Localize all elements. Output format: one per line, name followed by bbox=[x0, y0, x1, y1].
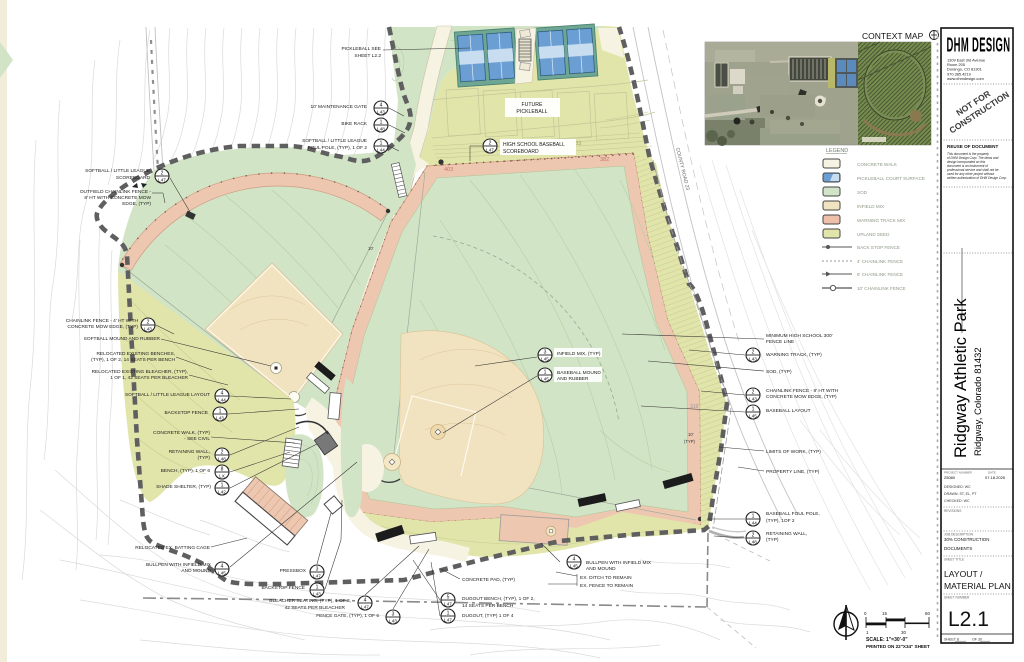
svg-text:CHAINLINK FENCE - 4' HT WITH: CHAINLINK FENCE - 4' HT WITH bbox=[66, 318, 139, 324]
svg-text:CONCRETE WALK, (TYP): CONCRETE WALK, (TYP) bbox=[153, 430, 210, 436]
svg-text:1: 1 bbox=[380, 120, 383, 126]
svg-text:BASEBALL LAYOUT: BASEBALL LAYOUT bbox=[766, 408, 811, 414]
svg-text:1: 1 bbox=[752, 514, 755, 520]
svg-text:UPLAND SEED: UPLAND SEED bbox=[857, 232, 890, 237]
svg-text:L44: L44 bbox=[218, 397, 226, 402]
svg-text:1: 1 bbox=[544, 370, 547, 376]
svg-text:SOD, (TYP): SOD, (TYP) bbox=[766, 369, 792, 375]
svg-text:EX. FENCE TO REMAIN: EX. FENCE TO REMAIN bbox=[580, 583, 634, 589]
svg-text:07.18.2025: 07.18.2025 bbox=[985, 475, 1006, 480]
svg-text:3: 3 bbox=[544, 350, 547, 356]
svg-text:L42: L42 bbox=[218, 489, 226, 494]
svg-text:BASEBALL FOUL POLE,: BASEBALL FOUL POLE, bbox=[766, 511, 820, 517]
svg-text:L47: L47 bbox=[444, 617, 452, 622]
svg-text:JOB DESCRIPTION: JOB DESCRIPTION bbox=[944, 533, 974, 537]
svg-text:1: 1 bbox=[316, 585, 319, 591]
svg-text:DOCUMENTS: DOCUMENTS bbox=[944, 546, 972, 551]
svg-text:1 OF 1, 42 SEATS PER BLEACHER: 1 OF 1, 42 SEATS PER BLEACHER bbox=[110, 375, 188, 381]
svg-text:25080: 25080 bbox=[944, 475, 956, 480]
svg-text:OF 30: OF 30 bbox=[972, 638, 982, 642]
svg-text:PICKLEBALL COURT SURFACE: PICKLEBALL COURT SURFACE bbox=[857, 176, 925, 181]
svg-text:8: 8 bbox=[221, 467, 224, 473]
svg-text:(TYP): (TYP) bbox=[197, 455, 210, 461]
svg-text:L47: L47 bbox=[444, 601, 452, 606]
svg-text:PICKLEBALL SEE: PICKLEBALL SEE bbox=[341, 46, 381, 52]
svg-text:L45: L45 bbox=[749, 413, 757, 418]
svg-text:10' MAINTENANCE GATE: 10' MAINTENANCE GATE bbox=[310, 104, 367, 110]
svg-text:PROPERTY LINE, (TYP): PROPERTY LINE, (TYP) bbox=[766, 469, 820, 475]
svg-text:2: 2 bbox=[489, 141, 492, 147]
svg-text:1: 1 bbox=[380, 141, 383, 147]
svg-text:EDGE, (TYP): EDGE, (TYP) bbox=[122, 201, 151, 207]
svg-text:L45: L45 bbox=[218, 570, 226, 575]
svg-text:FENCE LINE: FENCE LINE bbox=[766, 339, 794, 345]
svg-text:4: 4 bbox=[573, 557, 576, 563]
svg-text:2: 2 bbox=[161, 171, 164, 177]
svg-text:EX. DITCH TO REMAIN: EX. DITCH TO REMAIN bbox=[580, 575, 632, 581]
svg-text:L44: L44 bbox=[749, 520, 757, 525]
svg-text:BULLPEN WITH INFIELD MIX: BULLPEN WITH INFIELD MIX bbox=[586, 560, 652, 566]
svg-text:SOFTBALL / LITTLE LEAGUE: SOFTBALL / LITTLE LEAGUE bbox=[302, 138, 367, 144]
svg-text:4: 4 bbox=[380, 103, 383, 109]
svg-text:WARNING TRACK, (TYP): WARNING TRACK, (TYP) bbox=[766, 352, 822, 358]
svg-text:PRINTED ON 22"X34" SHEET: PRINTED ON 22"X34" SHEET bbox=[866, 644, 930, 649]
svg-text:Ridgway Athletic Park: Ridgway Athletic Park bbox=[952, 298, 970, 458]
svg-text:L45: L45 bbox=[541, 376, 549, 381]
svg-text:4: 4 bbox=[221, 564, 224, 570]
svg-text:L43: L43 bbox=[749, 356, 757, 361]
svg-text:42 SEATS PER BLEACHER: 42 SEATS PER BLEACHER bbox=[285, 605, 346, 611]
svg-text:BLEACHER SEATING, (TYP), 1 OF: BLEACHER SEATING, (TYP), 1 OF 3, bbox=[269, 598, 351, 604]
svg-text:CONCRETE MOW EDGE, (TYP): CONCRETE MOW EDGE, (TYP) bbox=[766, 394, 837, 400]
svg-text:SOFTBALL / LITTLE LEAGUE: SOFTBALL / LITTLE LEAGUE bbox=[85, 168, 150, 174]
svg-text:DRAWN: ST, EL, PT: DRAWN: ST, EL, PT bbox=[944, 492, 977, 496]
svg-text:60: 60 bbox=[925, 611, 931, 616]
svg-text:DATE: DATE bbox=[988, 471, 996, 475]
svg-text:OUTFIELD CHAINLINK FENCE -: OUTFIELD CHAINLINK FENCE - bbox=[80, 189, 152, 195]
svg-text:L48: L48 bbox=[749, 539, 757, 544]
svg-text:CHAINLINK FENCE - 8' HT WITH: CHAINLINK FENCE - 8' HT WITH bbox=[766, 388, 839, 394]
svg-text:SOD: SOD bbox=[857, 190, 868, 195]
svg-text:1: 1 bbox=[221, 483, 224, 489]
svg-text:RETAINING WALL,: RETAINING WALL, bbox=[766, 531, 807, 537]
svg-text:CONCRETE MOW EDGE, (TYP): CONCRETE MOW EDGE, (TYP) bbox=[67, 324, 138, 330]
svg-text:BENCH, (TYP), 1 OF 6: BENCH, (TYP), 1 OF 6 bbox=[161, 468, 211, 474]
svg-text:L47: L47 bbox=[361, 604, 369, 609]
svg-text:8' CHAINLINK FENCE: 8' CHAINLINK FENCE bbox=[857, 272, 903, 277]
svg-text:LAYOUT /: LAYOUT / bbox=[944, 569, 983, 579]
svg-text:FENCE GATE, (TYP), 1 OF 6: FENCE GATE, (TYP), 1 OF 6 bbox=[316, 613, 379, 619]
svg-text:L43: L43 bbox=[389, 618, 397, 623]
svg-text:30% CONSTRUCTION: 30% CONSTRUCTION bbox=[944, 537, 989, 542]
svg-text:4' CHAINLINK FENCE: 4' CHAINLINK FENCE bbox=[857, 259, 903, 264]
svg-text:LEGEND: LEGEND bbox=[826, 148, 848, 154]
svg-text:Ridgway, Colorado 81432: Ridgway, Colorado 81432 bbox=[973, 347, 984, 456]
svg-text:SHEET 8: SHEET 8 bbox=[944, 638, 959, 642]
svg-text:PICKLEBALL: PICKLEBALL bbox=[516, 109, 547, 115]
svg-text:SHADE SHELTER, (TYP): SHADE SHELTER, (TYP) bbox=[156, 484, 211, 490]
svg-text:5: 5 bbox=[447, 595, 450, 601]
svg-text:PRESSBOX: PRESSBOX bbox=[280, 568, 307, 574]
svg-text:L48: L48 bbox=[218, 456, 226, 461]
svg-text:SHEET TITLE: SHEET TITLE bbox=[944, 558, 964, 562]
svg-text:LX: LX bbox=[219, 473, 225, 478]
svg-text:30: 30 bbox=[901, 630, 907, 635]
svg-text:PROJECT NUMBER: PROJECT NUMBER bbox=[944, 471, 973, 475]
svg-text:BASEBALL MOUND: BASEBALL MOUND bbox=[557, 370, 601, 376]
svg-text:L43: L43 bbox=[216, 415, 224, 420]
svg-text:L47: L47 bbox=[313, 573, 321, 578]
svg-text:BACKSTOP FENCE: BACKSTOP FENCE bbox=[164, 410, 208, 416]
svg-text:2: 2 bbox=[752, 350, 755, 356]
svg-text:INFIELD MIX: INFIELD MIX bbox=[857, 204, 884, 209]
svg-text:- SEE CIVIL: - SEE CIVIL bbox=[184, 436, 210, 442]
svg-text:SHEET NUMBER: SHEET NUMBER bbox=[944, 596, 970, 600]
svg-text:4: 4 bbox=[221, 391, 224, 397]
svg-text:10': 10' bbox=[368, 246, 374, 251]
svg-text:(TYP), 1OF 2: (TYP), 1OF 2 bbox=[766, 518, 795, 524]
svg-text:BIKE RACK: BIKE RACK bbox=[341, 121, 367, 127]
svg-text:3: 3 bbox=[392, 612, 395, 618]
svg-text:L43: L43 bbox=[749, 396, 757, 401]
svg-text:L2.1: L2.1 bbox=[948, 608, 989, 631]
svg-text:382: 382 bbox=[600, 157, 609, 163]
svg-text:1: 1 bbox=[447, 611, 450, 617]
svg-text:CONCRETE PAD, (TYP): CONCRETE PAD, (TYP) bbox=[462, 577, 515, 583]
svg-text:BULLPEN WITH INFIELD MIX: BULLPEN WITH INFIELD MIX bbox=[146, 562, 212, 568]
svg-text:CHECKED: WC: CHECKED: WC bbox=[944, 499, 970, 503]
svg-text:14 SEATS PER BENCH: 14 SEATS PER BENCH bbox=[462, 603, 514, 609]
svg-text:MINIMUM HIGH SCHOOL 300': MINIMUM HIGH SCHOOL 300' bbox=[766, 333, 833, 339]
svg-text:LIMITS OF WORK, (TYP): LIMITS OF WORK, (TYP) bbox=[766, 449, 821, 455]
svg-text:L43: L43 bbox=[377, 109, 385, 114]
svg-text:2: 2 bbox=[221, 450, 224, 456]
svg-text:2: 2 bbox=[147, 320, 150, 326]
svg-text:403: 403 bbox=[444, 167, 453, 173]
svg-text:www.dhmdesign.com: www.dhmdesign.com bbox=[947, 76, 984, 81]
svg-text:AND MOUND: AND MOUND bbox=[181, 568, 211, 574]
svg-text:DESIGNED: WC: DESIGNED: WC bbox=[944, 485, 971, 489]
svg-text:CONTEXT MAP: CONTEXT MAP bbox=[862, 31, 924, 41]
svg-text:(TYP): (TYP) bbox=[684, 439, 696, 444]
svg-text:15: 15 bbox=[882, 611, 888, 616]
svg-text:DUGOUT BENCH, (TYP), 1 OF 2,: DUGOUT BENCH, (TYP), 1 OF 2, bbox=[462, 596, 535, 602]
svg-text:AND MOUND: AND MOUND bbox=[586, 566, 616, 572]
svg-text:BACKSTOP FENCE: BACKSTOP FENCE bbox=[261, 585, 305, 591]
svg-text:REVISIONS: REVISIONS bbox=[944, 509, 961, 513]
svg-text:8' HT WITH CONCRETE MOW: 8' HT WITH CONCRETE MOW bbox=[84, 195, 151, 201]
svg-text:DHM DESIGN: DHM DESIGN bbox=[947, 35, 1011, 57]
svg-text:CONCRETE WALK: CONCRETE WALK bbox=[857, 162, 898, 167]
svg-text:SOFTBALL MOUND AND RUBBER: SOFTBALL MOUND AND RUBBER bbox=[84, 336, 161, 342]
svg-text:RELOCATED EX. BATTING CAGE: RELOCATED EX. BATTING CAGE bbox=[135, 545, 210, 551]
svg-text:3: 3 bbox=[316, 567, 319, 573]
svg-text:AND RUBBER: AND RUBBER bbox=[557, 376, 589, 382]
svg-text:1: 1 bbox=[219, 409, 222, 415]
svg-text:SCALE: 1"=30'-0": SCALE: 1"=30'-0" bbox=[866, 637, 908, 643]
svg-text:RELOCATED EXISTING BENCHES,: RELOCATED EXISTING BENCHES, bbox=[96, 351, 175, 357]
svg-text:FOUL POLE, (TYP), 1 OF 2: FOUL POLE, (TYP), 1 OF 2 bbox=[308, 145, 368, 151]
svg-text:HIGH SCHOOL BASEBALL: HIGH SCHOOL BASEBALL bbox=[503, 142, 565, 148]
svg-text:L45: L45 bbox=[541, 356, 549, 361]
svg-text:4: 4 bbox=[364, 598, 367, 604]
svg-text:(TYP): (TYP) bbox=[766, 537, 779, 543]
svg-text:SOFTBALL / LITTLE LEAGUE LAYOU: SOFTBALL / LITTLE LEAGUE LAYOUT bbox=[125, 392, 210, 398]
svg-text:L43: L43 bbox=[144, 326, 152, 331]
svg-text:REUSE OF DOCUMENT: REUSE OF DOCUMENT bbox=[947, 144, 998, 149]
svg-text:10' CHAINLINK FENCE: 10' CHAINLINK FENCE bbox=[857, 286, 906, 291]
svg-text:INFIELD MIX, (TYP): INFIELD MIX, (TYP) bbox=[557, 351, 601, 357]
svg-text:L47: L47 bbox=[486, 147, 494, 152]
svg-text:RELOCATED EXISTING BLEACHER, (: RELOCATED EXISTING BLEACHER, (TYP), bbox=[92, 369, 188, 375]
svg-text:2: 2 bbox=[752, 390, 755, 396]
svg-text:L44: L44 bbox=[377, 147, 385, 152]
svg-text:1: 1 bbox=[752, 407, 755, 413]
svg-text:FUTURE: FUTURE bbox=[521, 102, 543, 108]
svg-text:L43: L43 bbox=[313, 591, 321, 596]
svg-text:10': 10' bbox=[688, 432, 694, 437]
svg-text:SCOREBOARD: SCOREBOARD bbox=[503, 149, 539, 155]
svg-text:L48: L48 bbox=[377, 126, 385, 131]
svg-text:BACK STOP FENCE: BACK STOP FENCE bbox=[857, 245, 900, 250]
svg-text:2: 2 bbox=[752, 533, 755, 539]
svg-text:(TYP), 1 OF 2, 14 SEATS PER BE: (TYP), 1 OF 2, 14 SEATS PER BENCH bbox=[91, 357, 175, 363]
svg-text:DUGOUT, (TYP) 1 OF 4: DUGOUT, (TYP) 1 OF 4 bbox=[462, 613, 514, 619]
svg-text:written authorization of DHM D: written authorization of DHM Design Corp… bbox=[947, 176, 1007, 180]
svg-text:SCOREBOARD: SCOREBOARD bbox=[116, 175, 151, 181]
svg-text:L45: L45 bbox=[570, 563, 578, 568]
svg-text:SHEET L2.2: SHEET L2.2 bbox=[354, 53, 381, 59]
svg-text:RETAINING WALL,: RETAINING WALL, bbox=[169, 449, 210, 455]
svg-text:MATERIAL PLAN: MATERIAL PLAN bbox=[944, 581, 1011, 591]
svg-text:L47: L47 bbox=[158, 177, 166, 182]
svg-text:WARNING TRACK MIX: WARNING TRACK MIX bbox=[857, 218, 905, 223]
